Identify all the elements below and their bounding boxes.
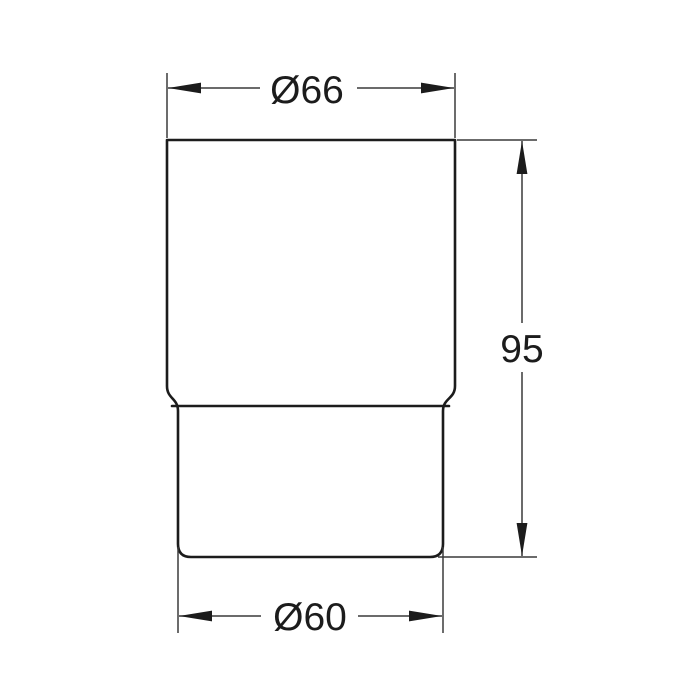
arrow-down-icon (517, 523, 528, 556)
dimension-label-top-diameter: Ø66 (270, 69, 344, 112)
arrow-left-icon (179, 611, 212, 622)
arrow-right-icon (409, 611, 442, 622)
dimension-bottom-diameter: Ø60 (178, 547, 443, 639)
arrow-right-icon (421, 83, 454, 94)
drawing-canvas: Ø66 95 Ø60 (0, 0, 700, 692)
tumbler-body-outline (167, 140, 455, 557)
arrow-left-icon (168, 83, 201, 94)
dimension-top-diameter: Ø66 (167, 69, 455, 138)
dimension-label-bottom-diameter: Ø60 (273, 596, 347, 639)
dimension-label-height: 95 (500, 328, 543, 371)
tumbler-outline (167, 140, 455, 557)
technical-drawing: Ø66 95 Ø60 (0, 0, 700, 692)
arrow-up-icon (517, 141, 528, 174)
